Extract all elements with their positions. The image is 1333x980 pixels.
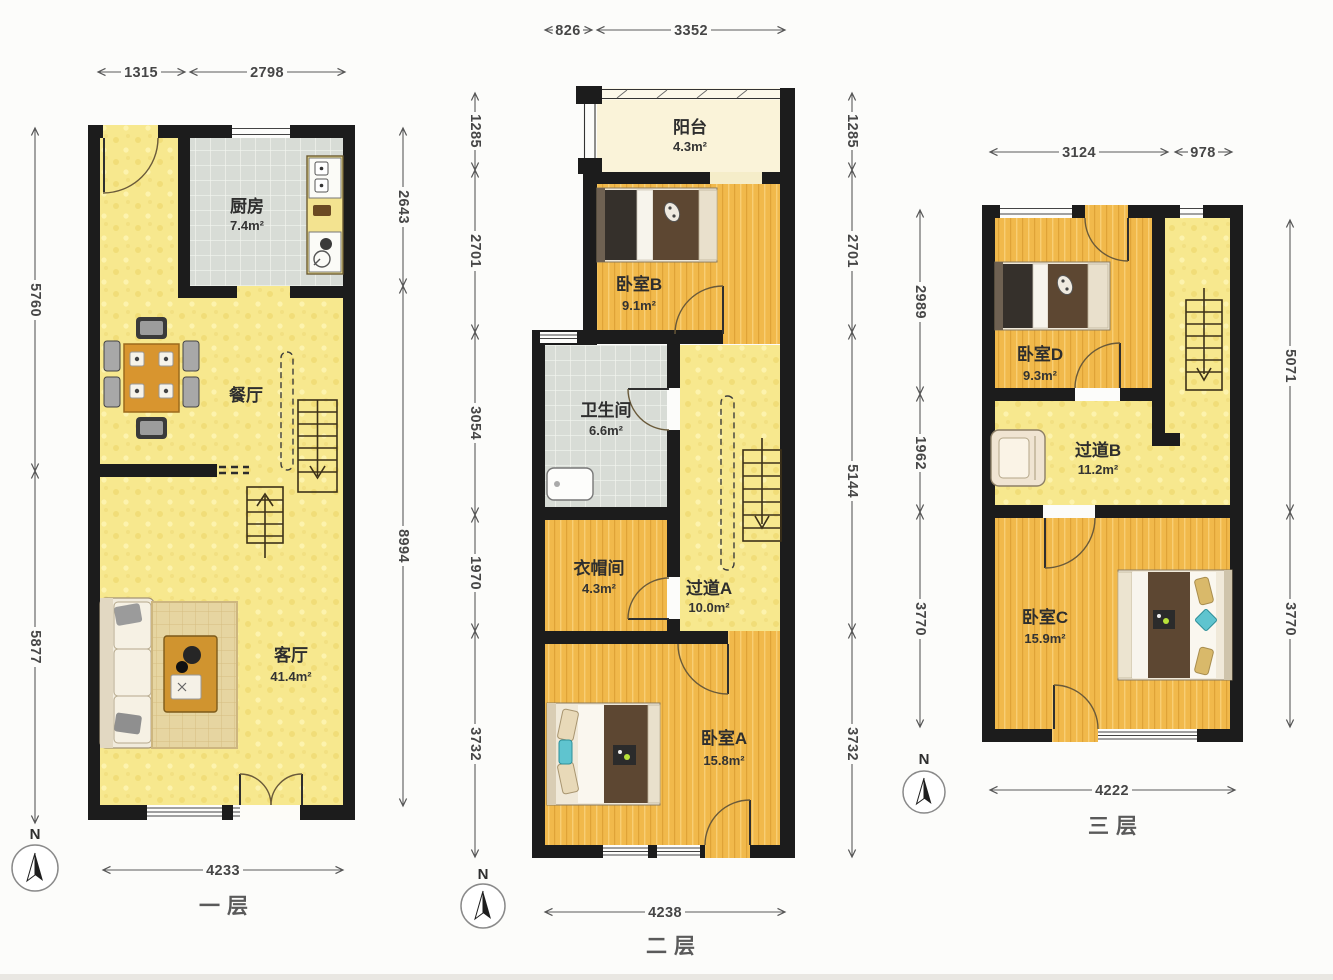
armchair-icon bbox=[991, 430, 1045, 486]
dim-label: 2798 bbox=[250, 65, 284, 81]
room-area: 15.9m² bbox=[1024, 631, 1066, 646]
room-name: 卧室B bbox=[616, 274, 662, 294]
bathtub-icon bbox=[547, 468, 593, 500]
bed-icon bbox=[547, 703, 660, 805]
room-name: 卧室C bbox=[1022, 607, 1068, 627]
dim-label: 826 bbox=[555, 23, 580, 39]
bed-icon bbox=[597, 188, 717, 262]
dim-label: 4233 bbox=[206, 863, 240, 879]
room-name: 卧室A bbox=[701, 728, 747, 748]
room-area: 4.3m² bbox=[673, 139, 708, 154]
dim-label: 2643 bbox=[395, 190, 411, 224]
dim-label: 4238 bbox=[648, 905, 682, 921]
dim-label: 3770 bbox=[1282, 602, 1298, 636]
dim-label: 8994 bbox=[395, 529, 411, 563]
dim-label: 3770 bbox=[912, 602, 928, 636]
room-name: 过道A bbox=[686, 578, 732, 598]
floor-label: 三层 bbox=[1088, 815, 1144, 838]
room-name: 厨房 bbox=[230, 196, 264, 216]
room-area: 15.8m² bbox=[703, 753, 745, 768]
dim-label: 5877 bbox=[27, 630, 43, 664]
room-area: 11.2m² bbox=[1078, 462, 1119, 477]
compass-n-label: N bbox=[478, 866, 489, 883]
room-name: 卫生间 bbox=[581, 400, 632, 420]
room-area: 6.6m² bbox=[589, 423, 624, 438]
dim-label: 5760 bbox=[27, 283, 43, 317]
dim-label: 1285 bbox=[467, 114, 483, 148]
room-area: 9.3m² bbox=[1023, 368, 1058, 383]
compass-icon: N bbox=[903, 751, 945, 813]
dim-label: 1962 bbox=[912, 436, 928, 470]
dim-label: 3732 bbox=[844, 727, 860, 761]
sofa-icon bbox=[100, 598, 154, 748]
room-name: 餐厅 bbox=[229, 385, 263, 405]
floorplan-drawing: 厨房 7.4m² 餐厅 客厅 41.4m² 1315 2798 5760 587… bbox=[0, 0, 1333, 980]
dim-label: 2989 bbox=[912, 285, 928, 319]
floor-plan-third: 卧室D 9.3m² 过道B 11.2m² 卧室C 15.9m² 3124 978… bbox=[903, 145, 1298, 838]
compass-n-label: N bbox=[919, 751, 930, 768]
compass-n-label: N bbox=[30, 826, 41, 843]
dim-label: 2701 bbox=[467, 234, 483, 268]
dim-label: 3352 bbox=[674, 23, 708, 39]
page-edge-band bbox=[0, 974, 1333, 980]
dim-label: 3124 bbox=[1062, 145, 1096, 161]
floor-plan-second: 阳台 4.3m² 卧室B 9.1m² 卫生间 6.6m² 衣帽间 4.3m² 过… bbox=[461, 23, 860, 958]
bed-icon bbox=[995, 262, 1110, 330]
compass-icon: N bbox=[12, 826, 58, 891]
room-area: 10.0m² bbox=[688, 600, 730, 615]
room-area: 9.1m² bbox=[622, 298, 657, 313]
dim-label: 3054 bbox=[467, 406, 483, 440]
bed-icon bbox=[1118, 570, 1232, 680]
floor-plan-first: 厨房 7.4m² 餐厅 客厅 41.4m² 1315 2798 5760 587… bbox=[12, 65, 411, 918]
dim-label: 1315 bbox=[124, 65, 158, 81]
floor-label: 二层 bbox=[646, 935, 702, 958]
coffee-table-icon bbox=[164, 636, 217, 712]
dim-label: 3732 bbox=[467, 727, 483, 761]
floorplan-page: 厨房 7.4m² 餐厅 客厅 41.4m² 1315 2798 5760 587… bbox=[0, 0, 1333, 980]
room-name: 阳台 bbox=[673, 117, 707, 137]
dim-label: 1970 bbox=[467, 556, 483, 590]
dim-label: 5144 bbox=[844, 464, 860, 498]
dim-label: 1285 bbox=[844, 114, 860, 148]
room-name: 过道B bbox=[1075, 440, 1121, 460]
room-name: 衣帽间 bbox=[574, 558, 625, 578]
room-area: 7.4m² bbox=[230, 218, 265, 233]
dim-label: 5071 bbox=[1282, 349, 1298, 383]
dim-label: 2701 bbox=[844, 234, 860, 268]
dim-label: 4222 bbox=[1095, 783, 1129, 799]
room-area: 41.4m² bbox=[270, 669, 312, 684]
kitchen-counter-icon bbox=[307, 156, 343, 274]
dim-label: 978 bbox=[1190, 145, 1215, 161]
room-name: 卧室D bbox=[1017, 344, 1063, 364]
floor-label: 一层 bbox=[199, 895, 255, 918]
room-name: 客厅 bbox=[273, 645, 308, 665]
room-area: 4.3m² bbox=[582, 581, 617, 596]
compass-icon: N bbox=[461, 866, 505, 928]
